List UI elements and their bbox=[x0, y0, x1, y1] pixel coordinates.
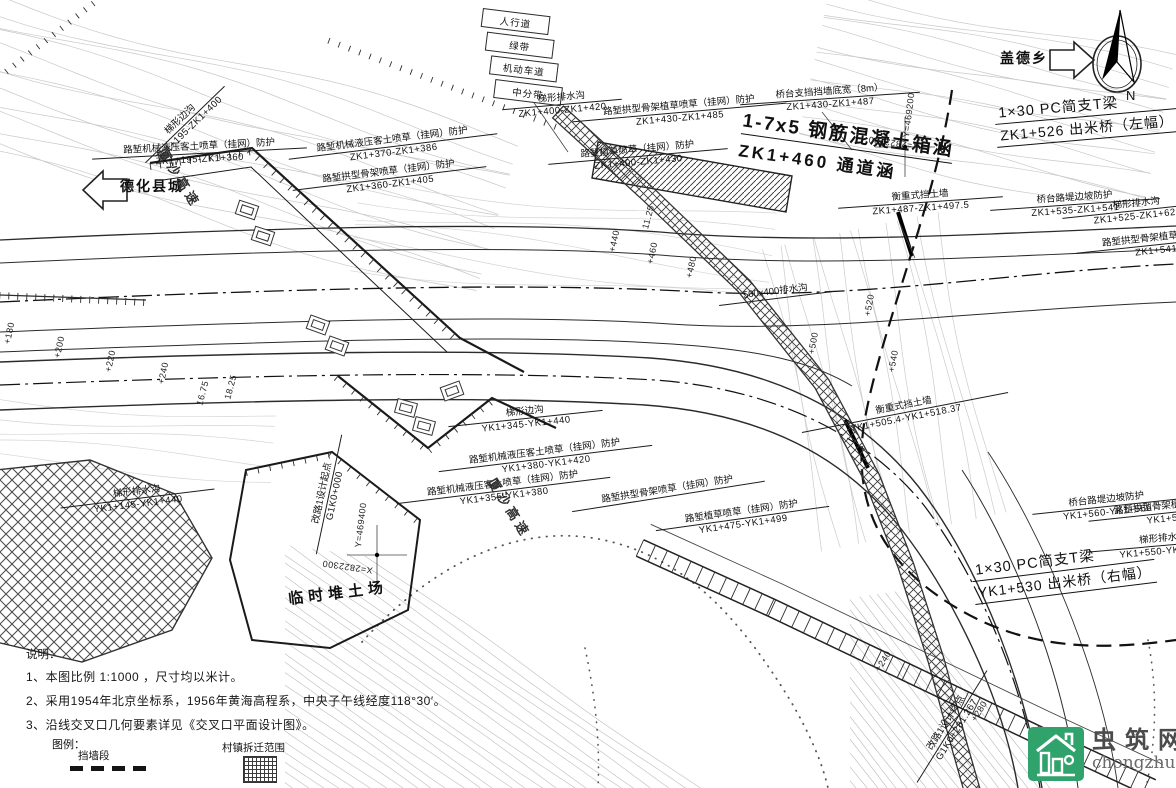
watermark-site-name: 虫筑网 bbox=[1092, 727, 1176, 753]
lane-label: 机动车道 bbox=[489, 55, 559, 82]
legend-label-wall: 挡墙段 bbox=[78, 748, 110, 763]
watermark-text: 虫筑网 chongzhu.cn bbox=[1092, 727, 1176, 773]
north-compass-icon bbox=[1093, 10, 1141, 92]
legend-wall-symbol bbox=[70, 766, 146, 771]
legend-demolition-symbol bbox=[243, 756, 277, 783]
note-item: 2、采用1954年北京坐标系，1956年黄海高程系，中央子午线经度118°30′… bbox=[26, 692, 446, 709]
destination-right: 盖德乡 bbox=[1000, 48, 1048, 68]
coordinate-point bbox=[375, 553, 379, 557]
note-item: 3、沿线交叉口几何要素详见《交叉口平面设计图》。 bbox=[26, 716, 446, 733]
plan-drawing-sheet: 人行道 绿带 机动车道 中分带 德化县城 盖德乡 N 1×30 PC简支T梁 Z… bbox=[0, 0, 1176, 788]
notes-block: 说明： 1、本图比例 1:1000 ，尺寸均以米计。 2、采用1954年北京坐标… bbox=[26, 646, 446, 740]
watermark: 虫筑网 chongzhu.cn bbox=[1028, 727, 1176, 781]
chongzhu-logo-icon bbox=[1028, 727, 1084, 781]
note-item: 1、本图比例 1:1000 ，尺寸均以米计。 bbox=[26, 668, 446, 685]
notes-heading: 说明： bbox=[26, 646, 446, 662]
watermark-domain: chongzhu.cn bbox=[1092, 753, 1176, 773]
right-direction-arrow-icon bbox=[1050, 42, 1094, 78]
legend-label-demolition: 村镇拆迁范围 bbox=[222, 740, 285, 755]
lane-label: 绿带 bbox=[485, 32, 555, 59]
